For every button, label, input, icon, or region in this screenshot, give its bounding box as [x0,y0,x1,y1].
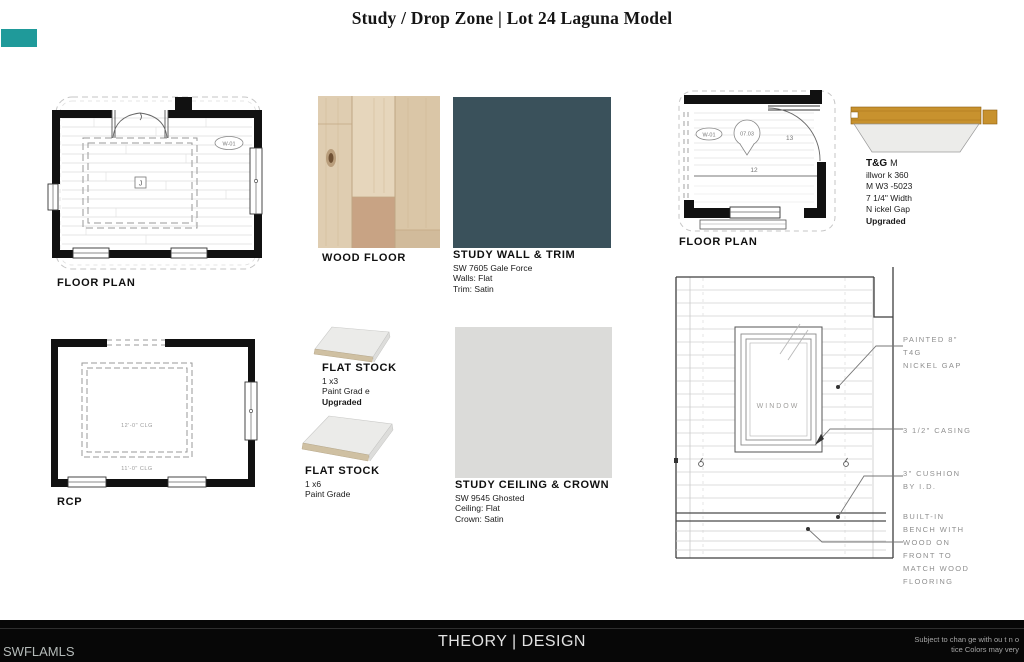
study-wall-line: Walls: Flat [453,273,603,284]
mls-watermark-icon [1,29,37,47]
tg-profile-drawing [849,102,999,158]
flat-stock-1x3-drawing [300,323,400,365]
flat-stock-1x6-line: Paint Grade [305,489,395,500]
tg-upgrade: Upgraded [866,216,986,228]
footer-bar: SWFLAMLS THEORY | DESIGN Subject to chan… [0,620,1024,662]
tg-spec: T&GM illwor k 360 M W3 -5023 7 1/4" Widt… [866,158,986,227]
study-plan-center-tag: J [139,181,143,188]
study-wall-title: STUDY WALL & TRIM [453,250,603,261]
study-wall-line: SW 7605 Gale Force [453,263,603,274]
dropzone-detail-tag: 07.03 [740,132,754,138]
tg-line: M W3 -5023 [866,181,986,193]
study-ceiling-line: SW 9545 Ghosted [455,493,625,504]
study-wall-swatch [453,97,611,248]
dropzone-window-tag: W-01 [702,133,715,139]
study-floor-plan-drawing: J W-01 [46,92,268,274]
dropzone-dim-right: 13 [786,135,794,142]
footer-disclaimer: Subject to chan ge with ou t n o tice Co… [819,635,1019,655]
rcp-ceiling-height-entry: 11'-0" CLG [121,466,152,472]
study-ceiling-title: STUDY CEILING & CROWN [455,480,625,491]
study-ceiling-line: Crown: Satin [455,514,625,525]
annotation-casing: 3 1/2" CASING [903,424,971,437]
study-ceiling-spec: STUDY CEILING & CROWN SW 9545 Ghosted Ce… [455,480,625,524]
tg-line: illwor k 360 [866,170,986,182]
study-ceiling-line: Ceiling: Flat [455,503,625,514]
flat-stock-1x6-drawing [300,413,400,467]
elevation-drawing: WINDOW [674,262,1024,587]
tg-line: N ickel Gap [866,204,986,216]
rcp-drawing: 12'-0" CLG 11'-0" CLG [47,333,259,495]
study-plan-window-tag: W-01 [222,142,235,148]
design-board: Study / Drop Zone | Lot 24 Laguna Model … [0,0,1024,662]
rcp-ceiling-height-main: 12'-0" CLG [121,423,153,429]
dropzone-floor-plan-drawing: 12 13 W-01 07.03 [676,88,838,240]
flat-stock-1x6-line: 1 x6 [305,479,395,490]
study-plan-label: FLOOR PLAN [57,277,136,289]
flat-stock-1x3-upgrade: Upgraded [322,397,412,408]
annotation-nickel-gap: PAINTED 8" T4G NICKEL GAP [903,333,962,372]
dropzone-dim-center: 12 [750,167,758,174]
flat-stock-1x3-title: FLAT STOCK [322,363,412,374]
flat-stock-1x3-line: 1 x3 [322,376,412,387]
wood-floor-swatch [318,96,440,248]
tg-line: 7 1/4" Width [866,193,986,205]
flat-stock-1x3-spec: FLAT STOCK 1 x3 Paint Grad e Upgraded [322,363,412,407]
flat-stock-1x6-spec: FLAT STOCK 1 x6 Paint Grade [305,466,395,500]
study-wall-spec: STUDY WALL & TRIM SW 7605 Gale Force Wal… [453,250,603,294]
tg-title: T&GM [866,158,986,170]
page-title: Study / Drop Zone | Lot 24 Laguna Model [0,8,1024,29]
annotation-bench: BUILT-IN BENCH WITH WOOD ON FRONT TO MAT… [903,510,969,588]
footer-divider [0,628,1024,629]
study-ceiling-swatch [455,327,612,478]
dropzone-plan-label: FLOOR PLAN [679,236,758,248]
rcp-label: RCP [57,496,82,508]
study-wall-line: Trim: Satin [453,284,603,295]
flat-stock-1x6-title: FLAT STOCK [305,466,395,477]
annotation-cushion: 3" CUSHION BY I.D. [903,467,961,493]
elevation-window-label: WINDOW [757,403,800,410]
flat-stock-1x3-line: Paint Grad e [322,386,412,397]
wood-floor-label: WOOD FLOOR [322,252,406,264]
